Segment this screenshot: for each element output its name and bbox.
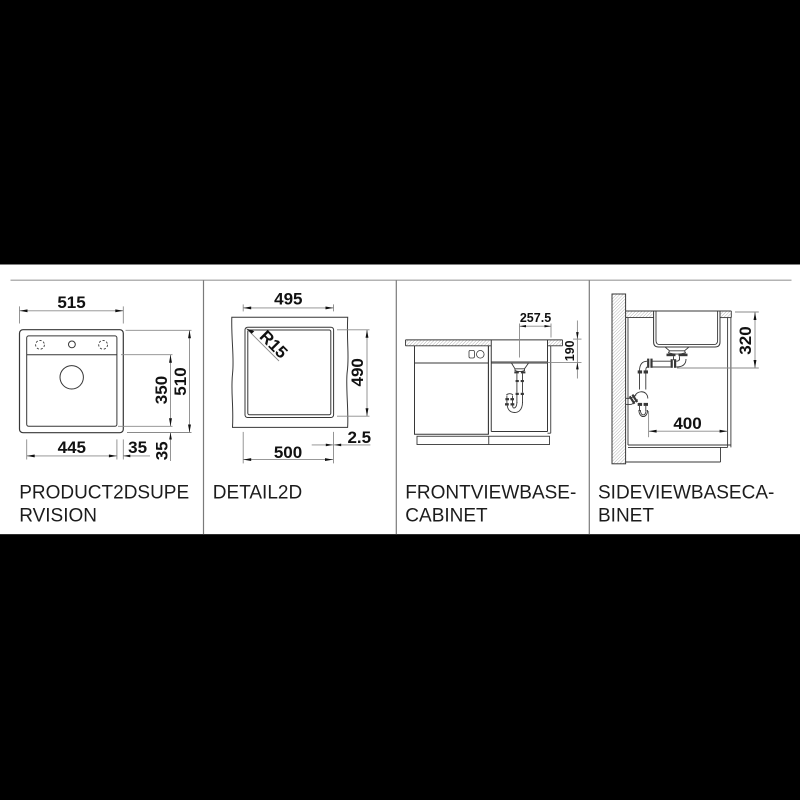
svg-text:2.5: 2.5 <box>347 428 371 447</box>
svg-text:510: 510 <box>171 367 190 395</box>
svg-text:190: 190 <box>563 340 577 361</box>
svg-text:515: 515 <box>57 293 85 312</box>
svg-text:RVISION: RVISION <box>19 506 97 527</box>
svg-text:BINET: BINET <box>598 506 654 527</box>
svg-text:500: 500 <box>274 443 302 462</box>
svg-text:350: 350 <box>152 376 171 404</box>
svg-text:490: 490 <box>348 358 367 386</box>
svg-text:FRONTVIEWBASE-: FRONTVIEWBASE- <box>405 483 576 504</box>
svg-text:495: 495 <box>274 290 302 309</box>
svg-text:CABINET: CABINET <box>405 506 488 527</box>
svg-text:PRODUCT2DSUPE: PRODUCT2DSUPE <box>19 483 189 504</box>
svg-text:445: 445 <box>58 438 86 457</box>
svg-text:DETAIL2D: DETAIL2D <box>213 483 302 504</box>
svg-text:320: 320 <box>736 326 755 354</box>
svg-text:257.5: 257.5 <box>520 311 551 325</box>
svg-text:35: 35 <box>153 441 172 460</box>
svg-text:SIDEVIEWBASECA-: SIDEVIEWBASECA- <box>598 483 774 504</box>
svg-text:35: 35 <box>128 438 147 457</box>
svg-text:400: 400 <box>673 414 701 433</box>
